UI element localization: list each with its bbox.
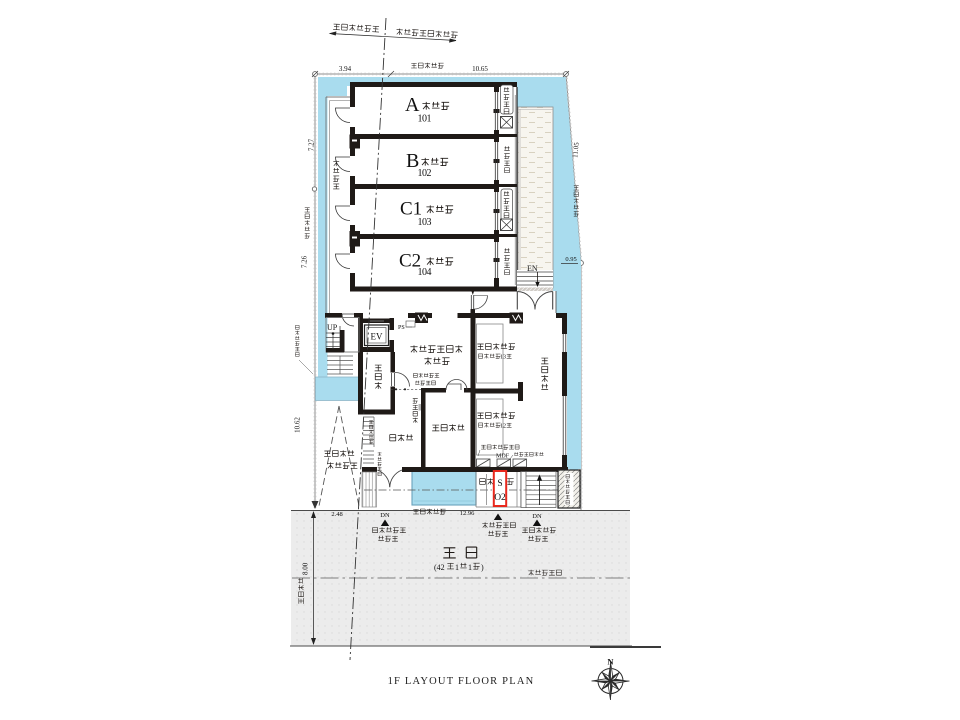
svg-text:1: 1: [455, 563, 459, 572]
svg-text:0.95: 0.95: [565, 256, 576, 263]
svg-text:10.62: 10.62: [294, 417, 302, 433]
svg-text:13: 13: [500, 355, 506, 361]
svg-text:UP: UP: [327, 323, 338, 332]
svg-text:11.05: 11.05: [571, 142, 580, 159]
svg-text:DN: DN: [532, 513, 542, 520]
svg-text:101: 101: [418, 114, 432, 125]
svg-text:103: 103: [418, 217, 432, 228]
svg-text:MDF: MDF: [496, 454, 510, 460]
svg-text:(42: (42: [434, 563, 445, 572]
svg-text:102: 102: [418, 168, 432, 179]
svg-text:N: N: [607, 657, 614, 667]
svg-text:10.65: 10.65: [472, 65, 488, 73]
svg-text:12.96: 12.96: [460, 510, 475, 517]
svg-text:O2: O2: [494, 493, 506, 503]
svg-text:7.26: 7.26: [301, 255, 309, 268]
svg-text:S: S: [497, 479, 502, 489]
svg-text:3.94: 3.94: [339, 65, 352, 73]
svg-text:): ): [481, 563, 484, 572]
svg-text:12: 12: [500, 424, 506, 430]
svg-text:1: 1: [468, 563, 472, 572]
svg-text:104: 104: [418, 267, 432, 278]
svg-text:2.48: 2.48: [331, 511, 342, 518]
svg-text:7.27: 7.27: [308, 138, 316, 151]
svg-text:EV: EV: [371, 332, 383, 342]
svg-text:EN: EN: [527, 264, 538, 273]
svg-text:1F LAYOUT FLOOR PLAN: 1F LAYOUT FLOOR PLAN: [388, 676, 535, 687]
svg-text:8.00: 8.00: [302, 562, 310, 575]
svg-text:PS: PS: [398, 325, 405, 331]
svg-text:DN: DN: [380, 512, 390, 519]
